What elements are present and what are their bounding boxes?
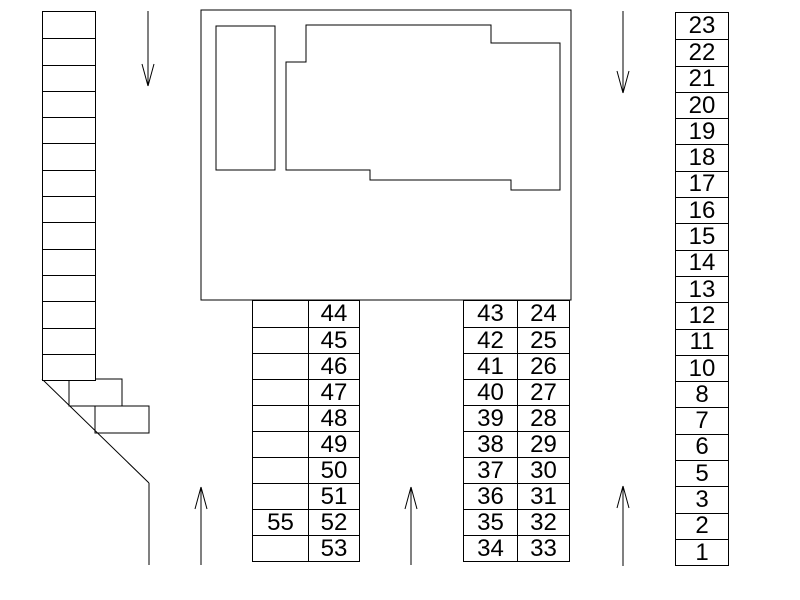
middle-right-stall-row: 3433 (464, 535, 569, 561)
middle-left-stall-right-cell: 44 (309, 301, 359, 327)
parking-stall-cell: 23 (676, 13, 728, 39)
middle-left-stall-right-cell: 52 (309, 510, 359, 535)
middle-left-stall-row: 53 (253, 535, 359, 561)
middle-left-stall-right-cell: 47 (309, 380, 359, 405)
up-arrow-icon (617, 486, 629, 566)
parking-stall-cell: 17 (676, 171, 728, 197)
parking-stall-cell: 19 (676, 118, 728, 144)
middle-right-stall-right-cell: 31 (518, 484, 569, 509)
middle-right-stall-left-cell: 42 (464, 328, 518, 353)
parking-stall-cell: 11 (676, 329, 728, 355)
building-inner-room-rect (216, 26, 275, 170)
up-arrow-icon (195, 487, 207, 565)
middle-left-stall-right-cell: 53 (309, 536, 359, 561)
middle-left-stall-right-cell: 49 (309, 432, 359, 457)
stair-parking-rect-b (95, 406, 149, 433)
middle-left-stall-right-cell: 50 (309, 458, 359, 483)
middle-right-stall-row: 4225 (464, 327, 569, 353)
left-stairs-table (42, 11, 96, 381)
middle-right-table: 4324422541264027392838293730363135323433 (463, 300, 570, 562)
middle-left-table: 4445464748495051555253 (252, 300, 360, 562)
middle-left-stall-row: 47 (253, 379, 359, 405)
middle-right-stall-left-cell: 39 (464, 406, 518, 431)
middle-left-stall-left-cell (253, 536, 309, 561)
middle-right-stall-left-cell: 34 (464, 536, 518, 561)
middle-right-stall-right-cell: 26 (518, 354, 569, 379)
middle-right-stall-right-cell: 32 (518, 510, 569, 535)
building-footprint-outline (286, 25, 560, 190)
stair-stall-cell (43, 170, 95, 196)
stair-stall-cell (43, 65, 95, 91)
middle-right-stall-left-cell: 41 (464, 354, 518, 379)
middle-left-stall-row: 48 (253, 405, 359, 431)
middle-left-stall-row: 44 (253, 301, 359, 327)
parking-stall-cell: 3 (676, 486, 728, 512)
middle-right-stall-right-cell: 29 (518, 432, 569, 457)
parking-stall-cell: 8 (676, 381, 728, 407)
parking-stall-cell: 20 (676, 92, 728, 118)
middle-left-stall-left-cell (253, 328, 309, 353)
middle-left-stall-left-cell (253, 432, 309, 457)
parking-stall-cell: 7 (676, 407, 728, 433)
parking-stall-cell: 13 (676, 276, 728, 302)
middle-left-stall-left-cell (253, 380, 309, 405)
middle-left-stall-row: 49 (253, 431, 359, 457)
stair-stall-cell (43, 301, 95, 327)
middle-left-stall-left-cell (253, 301, 309, 327)
stair-stall-cell (43, 196, 95, 222)
middle-right-stall-row: 4027 (464, 379, 569, 405)
middle-left-stall-right-cell: 46 (309, 354, 359, 379)
parking-stall-cell: 5 (676, 460, 728, 486)
stair-stall-cell (43, 354, 95, 380)
parking-stall-cell: 1 (676, 539, 728, 565)
middle-right-stall-left-cell: 37 (464, 458, 518, 483)
middle-right-stall-right-cell: 33 (518, 536, 569, 561)
middle-right-stall-right-cell: 28 (518, 406, 569, 431)
middle-left-stall-row: 46 (253, 353, 359, 379)
middle-left-stall-left-cell (253, 484, 309, 509)
stair-stall-cell (43, 117, 95, 143)
stair-stall-cell (43, 275, 95, 301)
parking-stall-cell: 15 (676, 223, 728, 249)
middle-left-stall-left-cell (253, 406, 309, 431)
middle-left-stall-right-cell: 45 (309, 328, 359, 353)
middle-left-stall-row: 45 (253, 327, 359, 353)
middle-right-stall-left-cell: 43 (464, 301, 518, 327)
middle-left-stall-left-cell: 55 (253, 510, 309, 535)
middle-left-stall-right-cell: 51 (309, 484, 359, 509)
middle-right-stall-row: 3631 (464, 483, 569, 509)
entrance-diagonal-line (42, 379, 149, 483)
middle-right-stall-right-cell: 27 (518, 380, 569, 405)
middle-right-stall-row: 4126 (464, 353, 569, 379)
middle-right-stall-left-cell: 35 (464, 510, 518, 535)
parking-stall-cell: 22 (676, 39, 728, 65)
middle-right-stall-left-cell: 38 (464, 432, 518, 457)
middle-right-stall-row: 4324 (464, 301, 569, 327)
building-outer-rect (201, 10, 571, 300)
middle-right-stall-right-cell: 24 (518, 301, 569, 327)
middle-right-stall-left-cell: 40 (464, 380, 518, 405)
parking-stall-cell: 12 (676, 302, 728, 328)
stair-stall-cell (43, 12, 95, 38)
parking-stall-cell: 16 (676, 197, 728, 223)
stair-stall-cell (43, 328, 95, 354)
stair-stall-cell (43, 249, 95, 275)
parking-lot-diagram: 4445464748495051555253 43244225412640273… (0, 0, 800, 600)
down-arrow-icon (617, 11, 629, 93)
middle-left-stall-row: 5552 (253, 509, 359, 535)
stair-stall-cell (43, 222, 95, 248)
stair-stall-cell (43, 143, 95, 169)
middle-right-stall-row: 3829 (464, 431, 569, 457)
parking-stall-cell: 2 (676, 513, 728, 539)
right-column-table: 23222120191817161514131211108765321 (675, 12, 729, 566)
middle-left-stall-left-cell (253, 458, 309, 483)
parking-stall-cell: 10 (676, 355, 728, 381)
middle-right-stall-right-cell: 30 (518, 458, 569, 483)
stair-stall-cell (43, 38, 95, 64)
middle-right-stall-row: 3730 (464, 457, 569, 483)
middle-right-stall-right-cell: 25 (518, 328, 569, 353)
middle-left-stall-row: 50 (253, 457, 359, 483)
stair-parking-rect-a (69, 379, 122, 406)
parking-stall-cell: 14 (676, 250, 728, 276)
middle-left-stall-left-cell (253, 354, 309, 379)
down-arrow-icon (142, 11, 154, 86)
middle-right-stall-left-cell: 36 (464, 484, 518, 509)
parking-stall-cell: 18 (676, 144, 728, 170)
parking-stall-cell: 6 (676, 434, 728, 460)
parking-stall-cell: 21 (676, 66, 728, 92)
middle-left-stall-row: 51 (253, 483, 359, 509)
middle-right-stall-row: 3532 (464, 509, 569, 535)
up-arrow-icon (405, 487, 417, 565)
middle-left-stall-right-cell: 48 (309, 406, 359, 431)
stair-stall-cell (43, 91, 95, 117)
middle-right-stall-row: 3928 (464, 405, 569, 431)
